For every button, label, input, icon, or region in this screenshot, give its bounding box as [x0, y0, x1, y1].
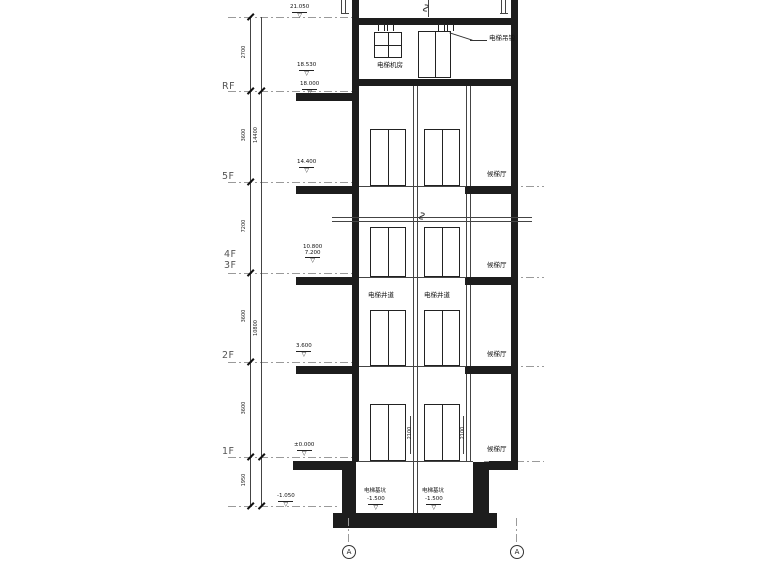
elevation-triangle-icon: ▽	[432, 505, 437, 510]
elevation-marker-2f: 3.600▽	[296, 344, 312, 357]
floor-label-2f: 2F	[222, 351, 235, 361]
lobby-slab-5f	[465, 186, 518, 194]
elevation-value: 21.050	[290, 5, 309, 11]
door-center-line	[442, 405, 443, 460]
parapet-left	[352, 0, 359, 18]
elevation-value: 18.000	[300, 82, 319, 88]
dim-overall-lower: 10800	[253, 316, 259, 340]
elevation-triangle-icon: ▽	[304, 71, 309, 76]
hoist-hook-icon	[378, 24, 385, 31]
shaft-sill-line-3f	[359, 277, 466, 278]
parapet-edge-line	[345, 0, 346, 13]
dim-3f-2f: 3600	[241, 304, 247, 328]
elevator-door-1f-right	[424, 404, 460, 461]
grid-centerline-left	[348, 518, 349, 544]
door-center-line	[442, 228, 443, 276]
door-center-line	[388, 228, 389, 276]
break-symbol-icon: ∿	[419, 2, 433, 14]
floor-slab-stub-1f	[293, 461, 352, 470]
elevation-marker-1f: ±0.000▽	[294, 443, 314, 456]
elevation-value: -1.500	[367, 497, 385, 503]
dim-5f-3f: 7200	[241, 214, 247, 238]
shaft-sill-line-2f	[359, 366, 466, 367]
elevation-triangle-icon: ▽	[304, 168, 309, 173]
lobby-label-3f: 候梯厅	[487, 262, 507, 269]
elevator-door-5f-left	[370, 129, 406, 186]
shaft-wall-right	[466, 86, 467, 462]
parapet-right	[511, 0, 518, 18]
parapet-edge-line	[501, 0, 502, 13]
dim-rf-5f: 3600	[241, 123, 247, 147]
elevator-door-2f-left	[370, 310, 406, 366]
machine-room-label: 电梯机房	[377, 62, 403, 69]
door-center-line	[388, 405, 389, 460]
elevator-door-3f-left	[370, 227, 406, 277]
door-center-line	[442, 311, 443, 365]
elevation-triangle-icon: ▽	[374, 505, 379, 510]
window-mullion	[375, 45, 401, 46]
door-height-dim-left: 2100	[407, 421, 413, 445]
pit-label-right: 电梯基坑	[422, 488, 444, 494]
elevation-triangle-icon: ▽	[307, 90, 312, 95]
floor-slab-stub-3f	[296, 277, 352, 285]
shaft-sill-line-1f	[358, 461, 473, 462]
dim-2f-1f: 3600	[241, 396, 247, 420]
leader-line	[470, 40, 487, 41]
elevation-value: -1.500	[425, 497, 443, 503]
dim-overall-upper: 14400	[253, 123, 259, 147]
pit-label-left: 电梯基坑	[364, 488, 386, 494]
break-symbol-icon: ∿	[415, 210, 429, 222]
elevation-triangle-icon: ▽	[297, 13, 302, 18]
traction-machine-centerline	[435, 32, 436, 77]
lobby-slab-1f	[489, 461, 518, 470]
elevation-marker-pit-right: -1.500▽	[425, 497, 443, 510]
elevation-value: 3.600	[296, 344, 312, 350]
machine-room-floor-slab	[352, 79, 518, 86]
elevation-triangle-icon: ▽	[302, 352, 307, 357]
grid-centerline-right	[516, 518, 517, 544]
shaft-wall-right	[470, 86, 471, 462]
elevation-value: 18.530	[297, 63, 316, 69]
elevation-marker-5f: 14.400▽	[297, 160, 316, 173]
door-center-line	[388, 311, 389, 365]
grid-bubble-left: A	[342, 545, 356, 559]
elevation-value: -1.050	[277, 494, 295, 500]
shaft-sill-line-5f	[359, 186, 466, 187]
floor-label-1f: 1F	[222, 447, 235, 457]
parapet-edge-line	[505, 0, 506, 13]
lobby-slab-3f	[465, 277, 518, 285]
machine-room-roof-slab	[352, 18, 518, 25]
elevator-door-1f-left	[370, 404, 406, 461]
shaft-divider-wall	[413, 86, 414, 513]
elevation-marker-pit-left: -1.500▽	[367, 497, 385, 510]
floor-label-5f: 5F	[222, 172, 235, 182]
break-line-lower	[332, 221, 532, 222]
floor-label-3f: 3F	[224, 261, 237, 271]
shaft-label-left: 电梯井道	[368, 292, 394, 299]
hoist-hook-icon	[447, 24, 454, 31]
break-line-upper	[332, 217, 532, 218]
elevation-value: ±0.000	[294, 443, 314, 449]
hoist-hook-icon	[387, 24, 394, 31]
elevator-door-2f-right	[424, 310, 460, 366]
machine-room-window	[374, 32, 402, 58]
lobby-label-2f: 候梯厅	[487, 351, 507, 358]
lobby-label-5f: 候梯厅	[487, 171, 507, 178]
floor-label-rf: RF	[222, 82, 235, 92]
elevation-marker-machine-floor: 18.530▽	[297, 63, 316, 76]
door-height-dim-right: 2100	[460, 421, 466, 445]
elevation-triangle-icon: ▽	[310, 258, 315, 263]
elevation-value: 7.200	[305, 251, 321, 257]
elevation-marker-4f-3f: 10.800 7.200 ▽	[303, 245, 322, 263]
traction-machine	[418, 31, 451, 78]
door-center-line	[388, 130, 389, 185]
parapet-edge-line	[341, 0, 342, 13]
elevation-triangle-icon: ▽	[302, 451, 307, 456]
elevation-marker-roof: 21.050▽	[290, 5, 309, 18]
lobby-label-1f: 候梯厅	[487, 446, 507, 453]
parapet-coping-line	[341, 13, 349, 14]
elevation-triangle-icon: ▽	[284, 502, 289, 507]
floor-slab-stub-2f	[296, 366, 352, 374]
dim-below-1f: 1950	[241, 468, 247, 492]
elevation-marker-rf: 18.000▽	[300, 82, 319, 95]
hoist-hook-label: 电梯吊钩	[489, 35, 515, 42]
elevation-marker-ground: -1.050▽	[277, 494, 295, 507]
elevator-section-drawing: ∿ ∿ 2100 2100 21.050▽ 18.530▽ 18.000▽ 14…	[0, 0, 760, 570]
floor-label-4f: 4F	[224, 250, 237, 260]
floor-slab-stub-5f	[296, 186, 352, 194]
pit-floor-slab	[333, 513, 497, 528]
shaft-label-right: 电梯井道	[424, 292, 450, 299]
elevator-door-5f-right	[424, 129, 460, 186]
elevation-value: 14.400	[297, 160, 316, 166]
door-center-line	[442, 130, 443, 185]
lobby-slab-2f	[465, 366, 518, 374]
pit-wall-right	[473, 462, 489, 513]
grid-bubble-right: A	[510, 545, 524, 559]
elevator-door-3f-right	[424, 227, 460, 277]
dim-machine-room-height: 2700	[241, 40, 247, 64]
parapet-coping-line	[500, 13, 508, 14]
shaft-divider-wall	[417, 86, 418, 513]
hoist-hook-icon	[438, 24, 445, 31]
